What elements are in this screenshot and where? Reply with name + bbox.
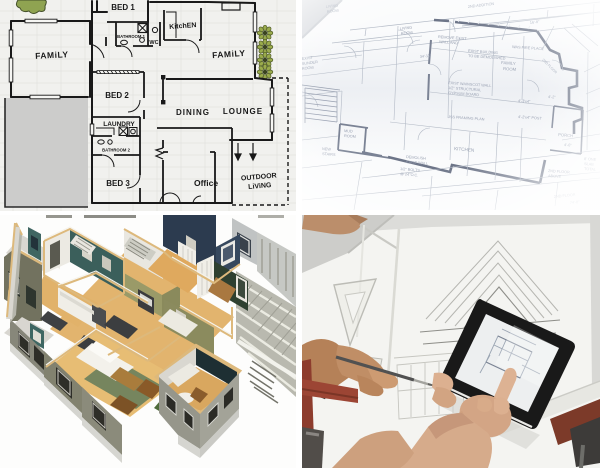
svg-text:LOUNGE: LOUNGE	[223, 107, 263, 116]
svg-text:LAUNDRY: LAUNDRY	[103, 121, 135, 128]
svg-text:BATHROOM 1: BATHROOM 1	[117, 34, 146, 39]
svg-text:BED 1: BED 1	[111, 3, 135, 12]
svg-text:FAMiLY: FAMiLY	[35, 49, 69, 61]
svg-text:BATHROOM 2: BATHROOM 2	[102, 148, 131, 153]
svg-text:DINING: DINING	[176, 108, 210, 117]
svg-text:BED 3: BED 3	[106, 179, 130, 188]
svg-text:WC: WC	[149, 40, 158, 46]
svg-text:BED 2: BED 2	[105, 91, 129, 100]
svg-text:Office: Office	[194, 178, 218, 188]
